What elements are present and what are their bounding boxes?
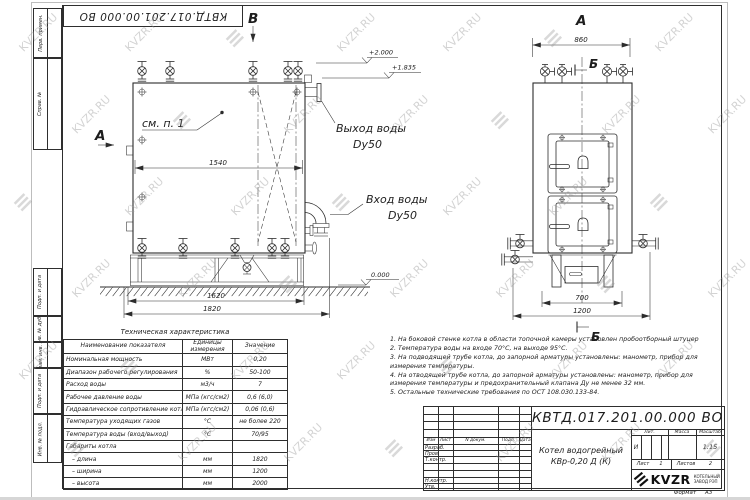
level-mark-body: +1.835 [322,64,421,79]
table-row: Рабочее давление водыМПа (кгс/см2)0,6 (6… [64,391,288,403]
inlet-size-text: Dy50 [388,209,417,222]
table-row: Расход водым3/ч7 [64,378,288,390]
table-row: – высотамм2000 [64,478,288,490]
door-latch [578,156,588,169]
dimension-860: 860 [533,36,631,57]
doc-number: КВТД.017.201.00.000 ВО [531,408,724,428]
format-value: А3 [705,490,712,496]
dimension-700: 700 [542,291,622,307]
col-izm: Изм [424,437,438,444]
table-header-row: Наименование показателя Единицы измерени… [64,340,288,354]
lit-value: И [631,435,641,459]
see-note-text: см. п. 1 [142,117,185,130]
top-valves [138,62,303,82]
sheet-value: 1 [653,459,669,469]
ash-door-handle [570,273,582,276]
inlet-label: Вход воды Dy50 [330,193,428,222]
row-utv: Утв. [425,484,453,490]
dim-text: 1540 [209,159,227,167]
support-frame [130,255,304,286]
col-header: Наименование показателя [64,340,183,354]
upper-door [548,134,617,193]
level-text: 0.000 [371,271,390,279]
dim-text: 1620 [207,292,225,300]
support-leg [604,255,613,287]
spring-logo-icon: ≡ [630,468,653,492]
outlet-size-text: Dy50 [353,138,382,151]
col-podp: Подп. [498,437,519,444]
note-item: 5. Остальные технические требования по О… [390,389,722,397]
title-block: КВТД.017.201.00.000 ВО Котел водогрейный… [423,406,725,491]
outlet-label: Выход воды Dy50 [322,101,407,151]
drawing-sheet: КВТД.017.201.00.000 ВО Перв. примен. Спр… [0,0,750,500]
support-leg [552,255,561,287]
table-row: Номинальная мощностьМВт0,20 [64,354,288,366]
dim-text: 1820 [203,305,221,313]
note-item: 4. На отводящей трубе котла, до запорной… [390,372,722,388]
lower-door [548,196,617,253]
scale-value: 1:15 [696,435,724,459]
dimension-1820: 1820 [124,238,330,318]
massa-label: Масса [668,429,696,435]
col-header: Единицы измерения [183,340,233,354]
section-mark-b-top: Б [575,57,598,76]
tech-characteristics-table: Наименование показателя Единицы измерени… [63,339,288,490]
table-row: Диапазон рабочего регулирования%50-100 [64,366,288,378]
inlet-label-text: Вход воды [366,193,428,206]
section-letter: Б [589,57,598,71]
sheets-value: 2 [699,459,722,469]
product-name-line2: КВр-0,20 Д (К) [531,456,631,467]
water-inlet-elbow [305,203,329,255]
ground-hatch-front [100,288,368,297]
format-label: Формат [674,490,696,496]
view-arrow-b: В [248,11,258,42]
table-row: Гидравлическое сопротивление котлаМПа (к… [64,403,288,415]
side-valves [502,235,658,266]
sheets-label: Листов [673,459,699,469]
col-data: Дата [519,437,531,444]
dim-text: 860 [574,36,588,44]
side-view-boiler: А 860 Б [502,13,658,344]
table-row: Габариты котла [64,440,288,452]
level-mark-ground: 0.000 [338,271,399,285]
technical-notes: 1. На боковой стенке котла в области топ… [390,336,722,398]
view-arrow-a: А [94,128,114,145]
table-row: Температура уходящих газов°Сне более 220 [64,416,288,428]
table-row: – длинамм1820 [64,453,288,465]
door-handle [550,225,570,229]
door-latch [578,218,588,231]
level-text: +2.000 [369,49,393,57]
format-note: Формат А3 [648,490,738,496]
note-item: 2. Температура воды на входе 70°С, на вы… [390,345,722,353]
product-name-line1: Котел водогрейный [531,445,631,456]
row-tkontr: Т.контр. [425,457,453,463]
dim-text: 700 [575,294,589,302]
ash-hopper [549,255,617,287]
kvzr-logo: ≡ KVZR КОТЕЛЬНЫЙ ЗАВОД РЭП [631,469,724,490]
dimension-1200: 1200 [513,252,650,320]
water-outlet-stub [305,75,322,102]
tech-table-title: Техническая характеристика [63,328,287,336]
logo-sub-line2: ЗАВОД РЭП [694,480,720,485]
col-list: Лист [438,437,453,444]
note-item: 1. На боковой стенке котла в области топ… [390,336,722,344]
level-mark-top: +2.000 [316,49,398,64]
col-ndoc: N докум. [453,437,498,444]
level-text: +1.835 [392,64,416,72]
view-letter-a: А [575,13,586,29]
see-note-callout: см. п. 1 [142,111,224,130]
dim-text: 1200 [573,307,591,315]
front-view-boiler: 1540 1620 1820 +2.000 [94,11,428,318]
table-row: Температура воды (вход/выход)°С70/95 [64,428,288,440]
note-item: 3. На подводящей трубе котла, до запорно… [390,354,722,370]
view-letter: В [248,11,258,27]
top-valves-side [540,65,632,83]
view-letter: А [94,128,105,144]
door-handle [550,165,570,169]
logo-name: KVZR [651,472,691,487]
col-header: Значение [233,340,288,354]
table-row: – ширинамм1200 [64,465,288,477]
outlet-label-text: Выход воды [336,122,406,135]
